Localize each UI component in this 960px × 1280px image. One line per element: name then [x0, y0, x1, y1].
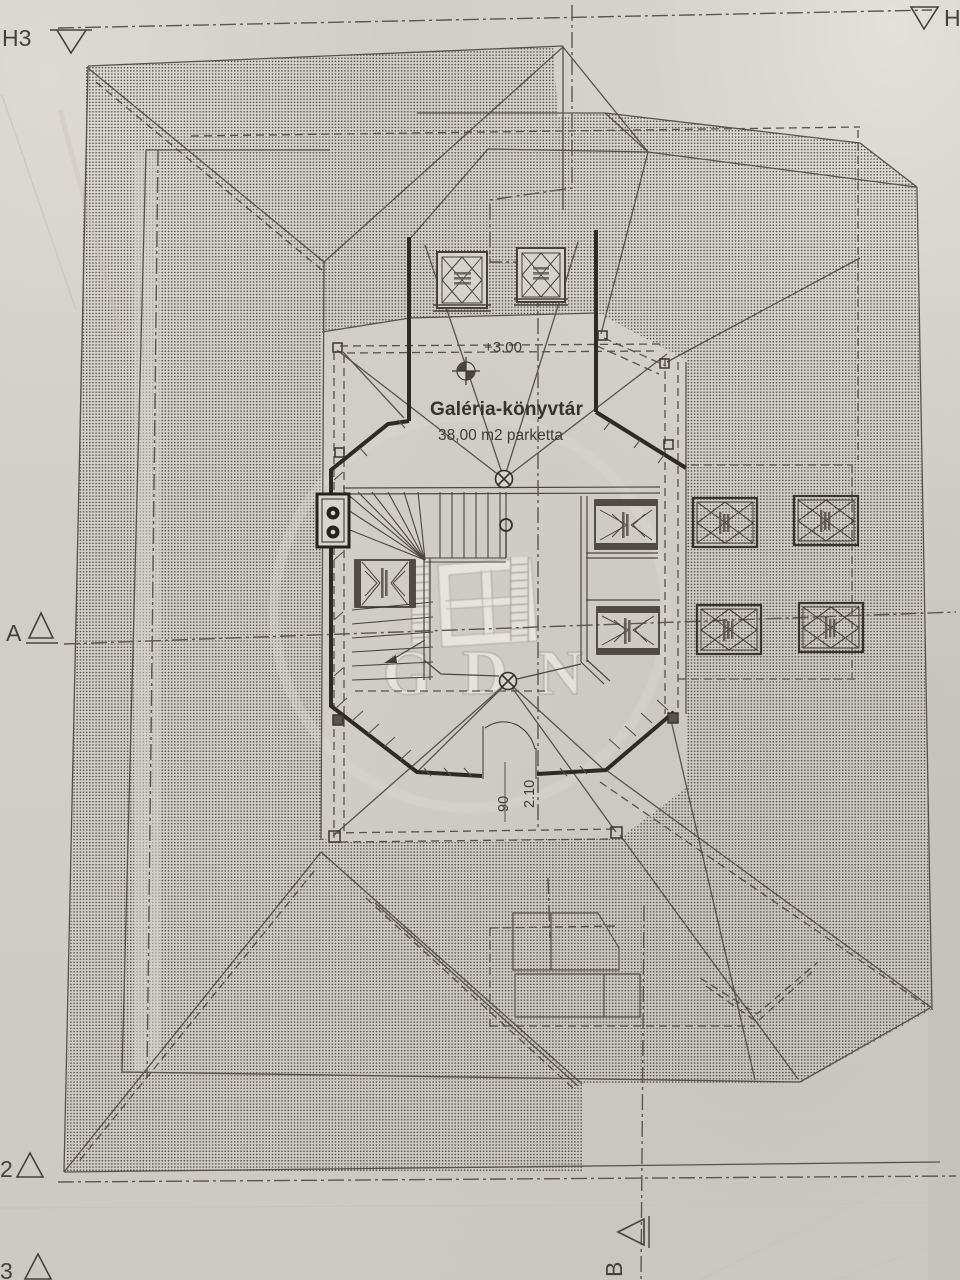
- svg-text:90: 90: [496, 796, 512, 812]
- svg-text:H: H: [944, 5, 960, 31]
- svg-text:38,00 m2 parketta: 38,00 m2 parketta: [438, 427, 563, 444]
- svg-text:+3.00: +3.00: [484, 339, 522, 356]
- svg-text:2.10: 2.10: [522, 780, 538, 808]
- svg-text:B: B: [601, 1262, 627, 1277]
- svg-text:H3: H3: [2, 25, 31, 51]
- svg-text:3: 3: [0, 1258, 13, 1280]
- svg-text:2: 2: [0, 1156, 13, 1182]
- svg-text:A: A: [6, 620, 22, 646]
- svg-text:Galéria-könyvtár: Galéria-könyvtár: [430, 399, 584, 420]
